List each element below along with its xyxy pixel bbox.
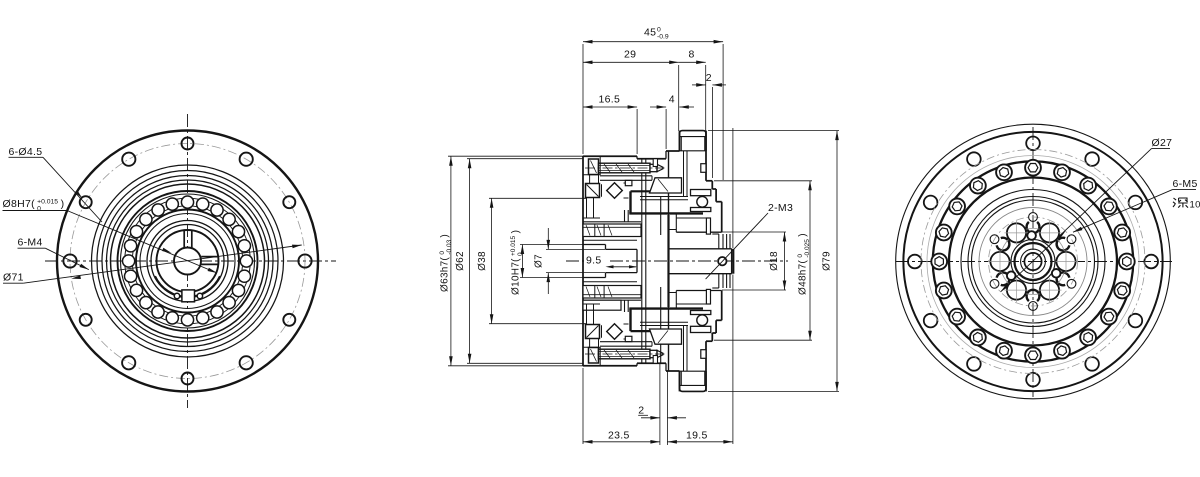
svg-text:8: 8 bbox=[689, 49, 695, 61]
svg-text:23.5: 23.5 bbox=[608, 429, 630, 441]
svg-text:4: 4 bbox=[669, 93, 675, 105]
svg-text:+0.015: +0.015 bbox=[37, 198, 58, 205]
svg-text:6-Ø4.5: 6-Ø4.5 bbox=[9, 146, 43, 158]
svg-text:): ) bbox=[440, 234, 451, 237]
svg-text:Ø8H7(: Ø8H7( bbox=[3, 198, 36, 210]
svg-text:-0.9: -0.9 bbox=[657, 34, 669, 41]
svg-text:0: 0 bbox=[439, 251, 446, 255]
svg-text:0: 0 bbox=[517, 252, 524, 256]
svg-text:19.5: 19.5 bbox=[686, 429, 708, 441]
svg-text:+0.015: +0.015 bbox=[510, 236, 517, 256]
svg-text:2: 2 bbox=[638, 405, 644, 417]
svg-text:0: 0 bbox=[797, 254, 804, 258]
svg-text:45: 45 bbox=[644, 27, 656, 39]
svg-text:Ø79: Ø79 bbox=[822, 251, 833, 271]
svg-text:): ) bbox=[61, 198, 65, 210]
svg-text:Ø63h7(: Ø63h7( bbox=[440, 256, 451, 292]
svg-text:Ø10H7(: Ø10H7( bbox=[511, 258, 522, 295]
svg-text:29: 29 bbox=[624, 49, 636, 61]
svg-text:10: 10 bbox=[1190, 200, 1200, 211]
svg-text:16.5: 16.5 bbox=[599, 93, 621, 105]
svg-text:Ø62: Ø62 bbox=[455, 251, 466, 271]
svg-text:6-M4: 6-M4 bbox=[18, 237, 43, 249]
svg-text:Ø38: Ø38 bbox=[477, 251, 488, 271]
svg-text:9.5: 9.5 bbox=[586, 255, 602, 267]
svg-text:-0.025: -0.025 bbox=[804, 239, 811, 258]
svg-text:Ø18: Ø18 bbox=[769, 251, 780, 271]
svg-text:-0.03: -0.03 bbox=[446, 239, 453, 254]
svg-text:): ) bbox=[798, 233, 809, 236]
svg-text:2-M3: 2-M3 bbox=[768, 202, 793, 214]
svg-text:Ø7: Ø7 bbox=[534, 254, 545, 268]
svg-text:Ø27: Ø27 bbox=[1152, 137, 1173, 149]
svg-text:2: 2 bbox=[706, 72, 712, 84]
svg-text:Ø48h7(: Ø48h7( bbox=[798, 259, 809, 295]
svg-text:6-M5: 6-M5 bbox=[1173, 178, 1198, 190]
svg-text:0: 0 bbox=[37, 205, 41, 212]
svg-text:0: 0 bbox=[657, 26, 661, 33]
svg-text:Ø71: Ø71 bbox=[3, 272, 24, 284]
svg-text:): ) bbox=[511, 230, 522, 233]
